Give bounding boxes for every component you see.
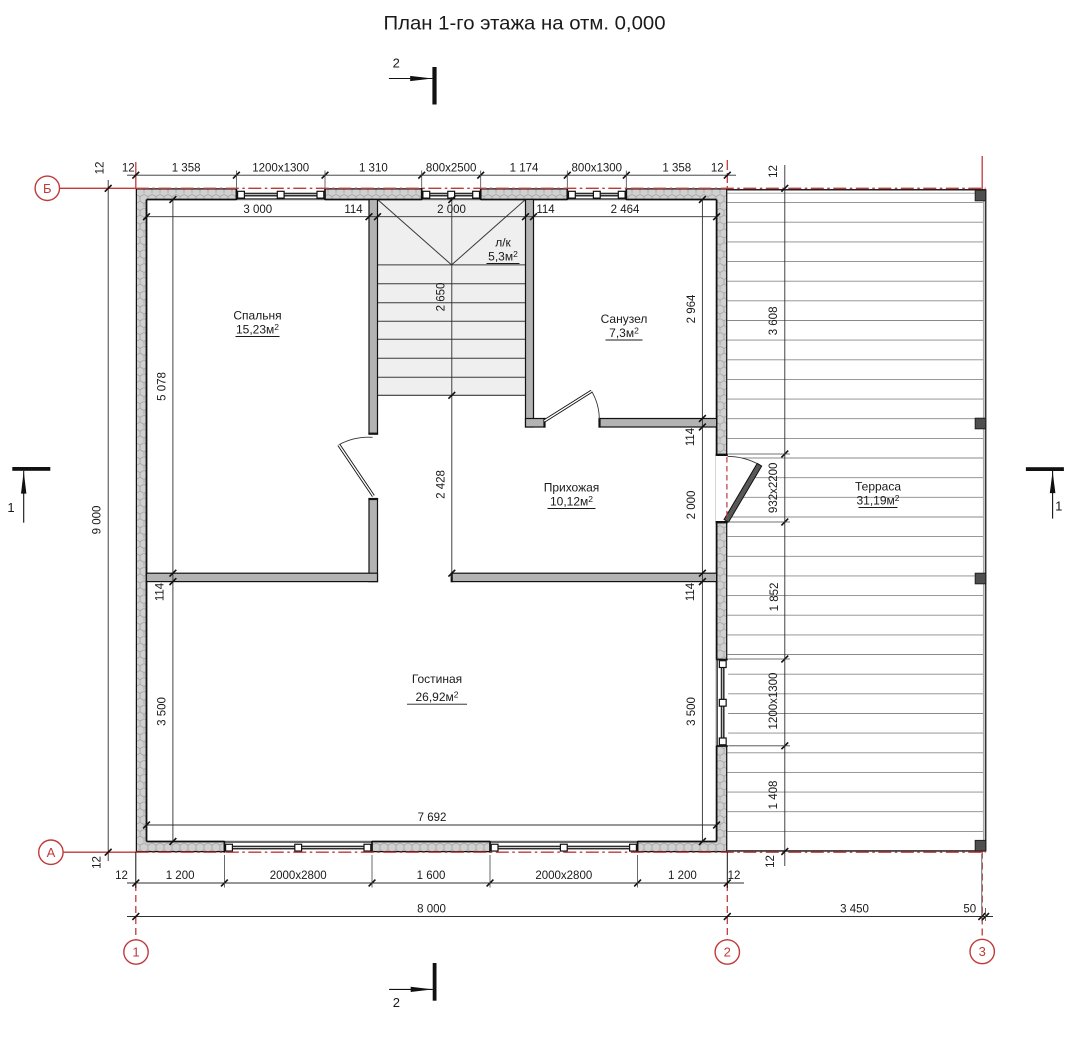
svg-text:114: 114 (344, 204, 363, 216)
svg-text:л/к: л/к (495, 236, 511, 250)
svg-text:1 200: 1 200 (166, 870, 195, 882)
svg-text:3 000: 3 000 (243, 204, 272, 216)
svg-text:1: 1 (7, 500, 14, 515)
svg-text:50: 50 (963, 903, 976, 915)
svg-text:12: 12 (728, 870, 741, 882)
svg-text:1: 1 (132, 945, 139, 960)
svg-text:2: 2 (393, 56, 400, 71)
svg-text:План 1-го этажа на отм. 0,000: План 1-го этажа на отм. 0,000 (384, 13, 666, 35)
svg-text:31,19м2: 31,19м2 (856, 493, 899, 508)
svg-text:12: 12 (768, 165, 780, 178)
svg-text:1 310: 1 310 (359, 163, 388, 175)
svg-text:2 464: 2 464 (611, 204, 640, 216)
svg-text:А: А (47, 845, 56, 860)
svg-text:12: 12 (94, 162, 106, 175)
svg-text:5 078: 5 078 (156, 372, 168, 401)
svg-text:114: 114 (685, 427, 697, 446)
svg-text:2 000: 2 000 (686, 491, 698, 520)
svg-text:Б: Б (43, 181, 52, 196)
svg-text:114: 114 (536, 204, 555, 216)
svg-text:2 964: 2 964 (686, 294, 698, 323)
svg-text:Спальня: Спальня (233, 309, 281, 323)
svg-text:3: 3 (979, 944, 986, 959)
svg-text:1 200: 1 200 (668, 870, 697, 882)
svg-text:1 358: 1 358 (662, 163, 691, 175)
svg-text:Терраса: Терраса (855, 480, 901, 494)
svg-text:1 358: 1 358 (172, 163, 201, 175)
svg-text:Санузел: Санузел (601, 312, 648, 326)
svg-text:3 500: 3 500 (686, 697, 698, 726)
svg-text:9 000: 9 000 (92, 506, 104, 535)
svg-text:3 450: 3 450 (840, 903, 869, 915)
svg-text:932x2200: 932x2200 (768, 463, 780, 514)
svg-text:1 174: 1 174 (510, 163, 539, 175)
svg-text:800x2500: 800x2500 (426, 163, 477, 175)
svg-text:1: 1 (1055, 499, 1062, 514)
svg-text:2 428: 2 428 (435, 470, 447, 499)
svg-text:12: 12 (115, 870, 128, 882)
svg-text:2000x2800: 2000x2800 (270, 870, 327, 882)
svg-text:7 692: 7 692 (418, 812, 447, 824)
svg-text:12: 12 (711, 163, 724, 175)
svg-text:12: 12 (122, 163, 135, 175)
svg-text:1 852: 1 852 (769, 583, 781, 612)
svg-text:800x1300: 800x1300 (572, 163, 623, 175)
svg-text:1 408: 1 408 (768, 781, 780, 810)
svg-text:114: 114 (155, 582, 167, 601)
svg-text:3 608: 3 608 (768, 307, 780, 336)
svg-text:2000x2800: 2000x2800 (535, 870, 592, 882)
svg-text:1200x1300: 1200x1300 (252, 163, 309, 175)
svg-text:114: 114 (685, 582, 697, 601)
svg-text:2: 2 (724, 945, 731, 960)
svg-text:2: 2 (393, 995, 400, 1010)
svg-text:1200x1300: 1200x1300 (768, 673, 780, 730)
svg-text:10,12м2: 10,12м2 (550, 494, 593, 509)
svg-text:15,23м2: 15,23м2 (236, 322, 279, 337)
svg-text:8 000: 8 000 (417, 903, 446, 915)
svg-text:3 500: 3 500 (156, 697, 168, 726)
svg-text:26,92м2: 26,92м2 (415, 690, 458, 705)
svg-text:Гостиная: Гостиная (412, 672, 462, 686)
svg-text:1 600: 1 600 (417, 870, 446, 882)
svg-text:12: 12 (765, 855, 777, 868)
svg-text:12: 12 (92, 856, 104, 869)
svg-text:Прихожая: Прихожая (544, 481, 600, 495)
svg-text:2 650: 2 650 (435, 283, 447, 312)
